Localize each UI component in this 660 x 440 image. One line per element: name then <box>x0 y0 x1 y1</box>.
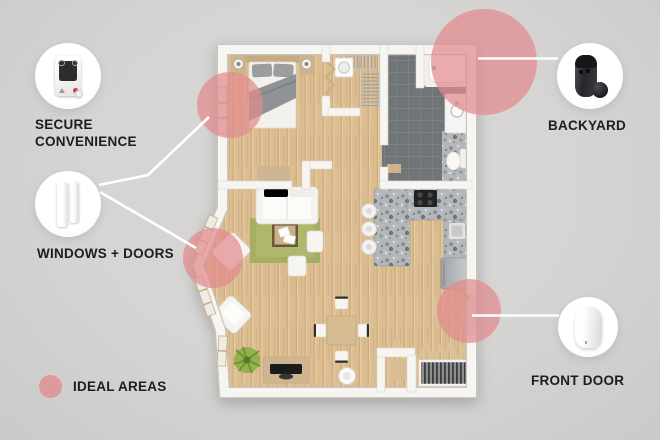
ideal-area-backyard <box>431 9 537 115</box>
secure-convenience-label: SECURE CONVENIENCE <box>35 117 137 150</box>
front-door-label: FRONT DOOR <box>531 373 623 390</box>
entry-grate <box>420 361 467 385</box>
callout-backyard <box>557 43 623 109</box>
windows-doors-label: WINDOWS + DOORS <box>37 246 174 263</box>
outdoor-camera-icon <box>575 55 597 97</box>
ideal-area-living-window <box>183 228 243 288</box>
sofa <box>256 187 318 224</box>
ideal-area-front-door <box>437 279 501 343</box>
backyard-label: BACKYARD <box>541 118 633 135</box>
door-window-sensors-icon <box>57 182 79 227</box>
indoor-camera-icon <box>575 307 602 348</box>
bar-stools <box>362 204 377 255</box>
keyfob-icon <box>55 56 81 96</box>
callout-front-door <box>558 297 618 357</box>
ideal-area-legend-dot <box>39 375 62 398</box>
connector-windows-to-living <box>100 192 196 248</box>
security-infographic: SECURE CONVENIENCE WINDOWS + DOORS BACKY… <box>0 0 660 440</box>
secure-convenience-line2: CONVENIENCE <box>35 134 137 151</box>
ideal-areas-label: IDEAL AREAS <box>73 379 167 396</box>
tv-stand <box>263 357 309 383</box>
secure-convenience-line1: SECURE <box>35 117 137 134</box>
ideal-area-bedroom-window <box>197 72 263 138</box>
plant <box>234 347 260 373</box>
callout-secure-convenience <box>35 43 101 109</box>
callout-windows-doors <box>35 171 101 237</box>
